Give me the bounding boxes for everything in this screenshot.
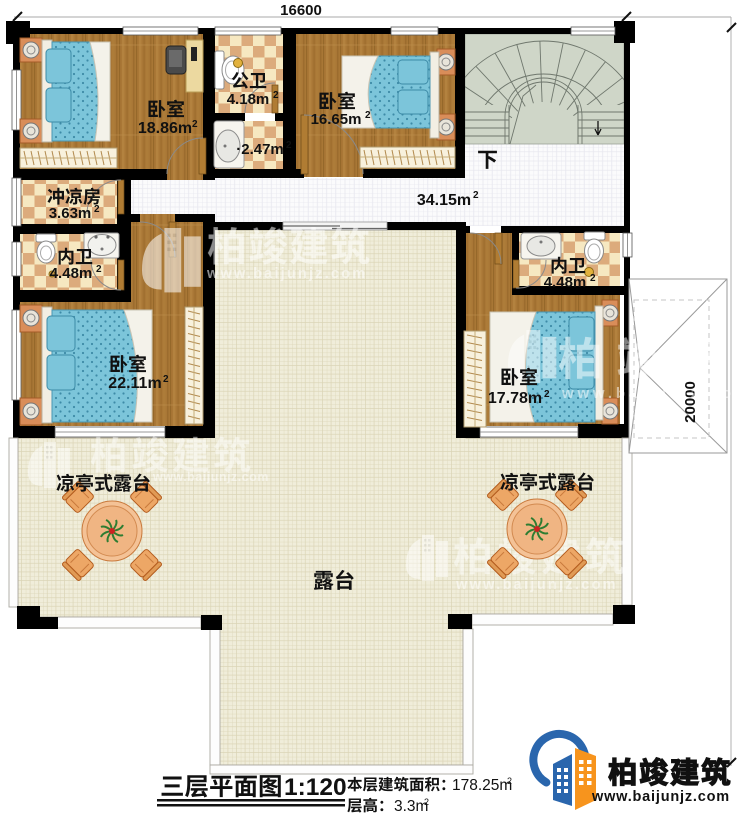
svg-text:16.65m: 16.65m <box>311 111 362 128</box>
svg-text:4.48m: 4.48m <box>544 274 587 291</box>
svg-text:www.baijunjz.com: www.baijunjz.com <box>561 385 750 402</box>
svg-text:2: 2 <box>590 273 596 284</box>
svg-text:2: 2 <box>424 797 429 807</box>
svg-text:3.63m: 3.63m <box>49 205 92 222</box>
svg-text:2: 2 <box>94 204 100 215</box>
svg-text:17.78m: 17.78m <box>488 390 542 407</box>
svg-text:178.25m: 178.25m <box>452 777 512 794</box>
svg-text:2: 2 <box>286 140 292 151</box>
svg-text:34.15m: 34.15m <box>417 192 471 209</box>
svg-text:2: 2 <box>544 389 550 400</box>
svg-text:·2.47m: ·2.47m <box>236 141 284 158</box>
svg-text:22.11m: 22.11m <box>108 375 161 392</box>
svg-text:1:120: 1:120 <box>284 774 347 801</box>
svg-text:www.baijunjz.com: www.baijunjz.com <box>455 577 618 593</box>
svg-text:2: 2 <box>192 119 198 130</box>
svg-text:2: 2 <box>473 190 479 201</box>
svg-text:2: 2 <box>365 110 371 121</box>
svg-text:2: 2 <box>96 264 102 275</box>
svg-text:www.baijunjz.com: www.baijunjz.com <box>152 470 269 484</box>
svg-text:4.48m: 4.48m <box>50 265 93 282</box>
svg-text:www.baijunjz.com: www.baijunjz.com <box>206 266 367 282</box>
svg-text:2: 2 <box>273 90 279 101</box>
svg-text:4.18m: 4.18m <box>227 91 270 108</box>
svg-text:2: 2 <box>507 776 512 786</box>
svg-text:18.86m: 18.86m <box>138 120 192 137</box>
svg-text:16600: 16600 <box>280 2 322 19</box>
svg-text:www.baijunjz.com: www.baijunjz.com <box>591 789 730 805</box>
svg-text:2: 2 <box>163 374 169 385</box>
